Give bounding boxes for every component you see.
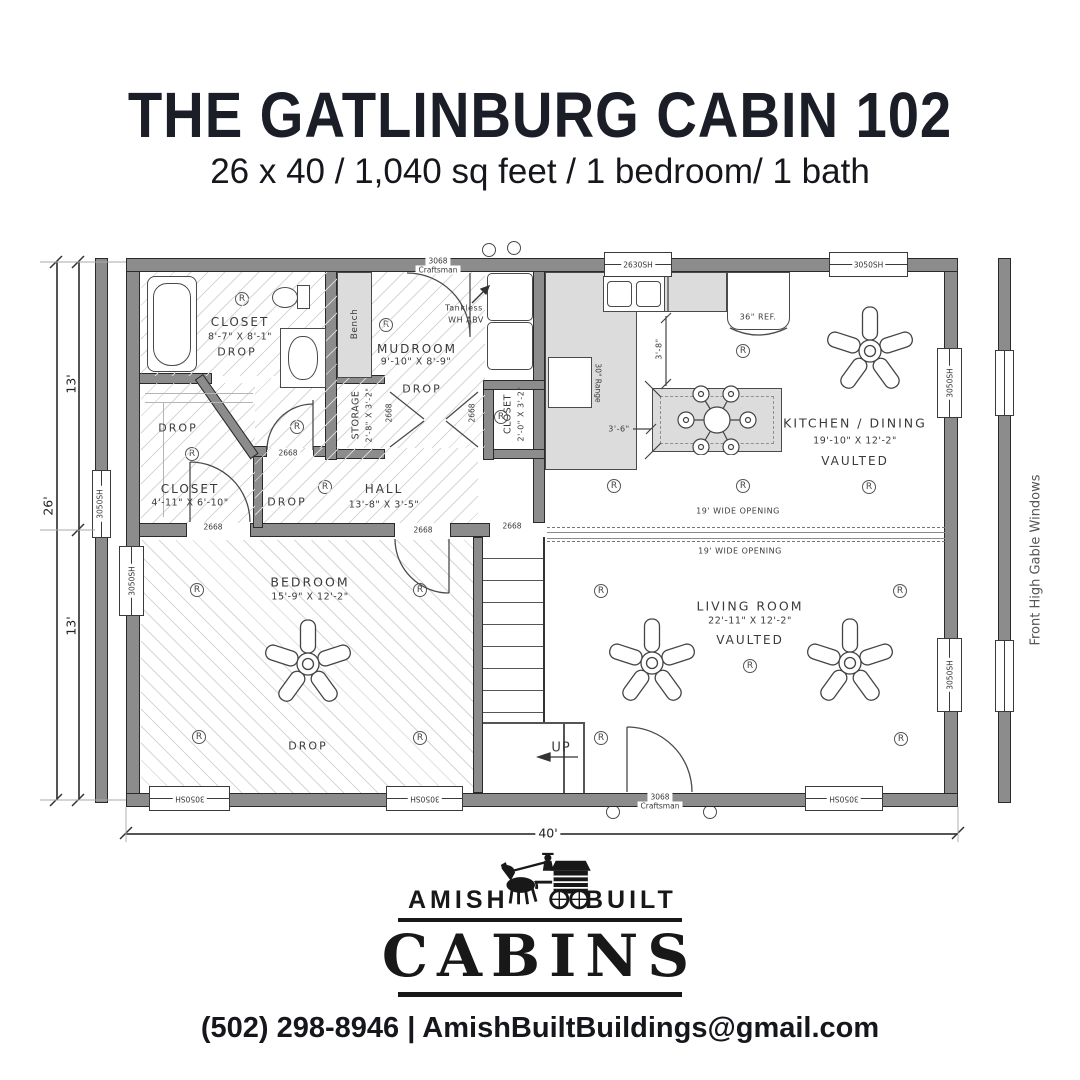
- wall-segment: [998, 258, 1011, 803]
- window-3050SH: 3050SH: [119, 546, 144, 616]
- vanity-sink: [288, 336, 318, 380]
- stair-landing-line: [583, 723, 585, 793]
- window-3050SH: 3050SH: [937, 638, 962, 712]
- half-depth-dim: 13': [64, 616, 79, 635]
- island-light-fixture-icon: [657, 385, 777, 460]
- clearance-dim: 3'-8": [655, 338, 664, 359]
- recessed-light-symbol: R: [413, 583, 427, 597]
- recessed-light-symbol: R: [736, 479, 750, 493]
- stair-landing-line: [563, 723, 565, 793]
- bedroom-note: DROP: [288, 740, 327, 753]
- refrigerator-label: 36" REF.: [740, 313, 777, 322]
- fixture-circle: [606, 805, 620, 819]
- wall-segment: [450, 523, 490, 537]
- window-3050SH: 3050SH: [829, 252, 908, 277]
- wall-segment: [944, 258, 958, 807]
- fixture-circle: [507, 241, 521, 255]
- closet-note: DROP: [158, 422, 197, 435]
- contact-info: (502) 298-8946 | AmishBuiltBuildings@gma…: [201, 1012, 879, 1045]
- clearance-dim: 3'-6": [608, 425, 629, 434]
- recessed-light-symbol: R: [894, 732, 908, 746]
- kitchen-name: KITCHEN / DINING: [783, 416, 927, 431]
- window-3050SH: 3050SH: [149, 786, 230, 811]
- sink-bowl: [636, 281, 661, 307]
- door-label: 2668: [410, 526, 435, 535]
- bath-name: CLOSET: [211, 315, 270, 329]
- toilet-tank: [297, 285, 310, 309]
- dimension-line: [56, 262, 58, 800]
- logo-word-built: BUILT: [585, 886, 677, 915]
- gable-window: [995, 350, 1014, 416]
- dimension-line: [78, 262, 80, 800]
- bath-dims: 8'-7" X 8'-1": [208, 332, 272, 343]
- range-label: 30" Range: [594, 363, 603, 402]
- mudroom-dims: 9'-10" X 8'-9": [381, 357, 452, 368]
- recessed-light-symbol: R: [893, 584, 907, 598]
- kitchen-dims: 19'-10" X 12'-2": [813, 436, 897, 447]
- bench-label: Bench: [350, 309, 360, 340]
- storage-name: STORAGE: [351, 391, 362, 440]
- living-name: LIVING ROOM: [696, 599, 803, 614]
- recessed-light-symbol: R: [190, 583, 204, 597]
- bedroom-dims: 15'-9" X 12'-2": [271, 592, 348, 603]
- logo-word-amish: AMISH: [408, 886, 509, 915]
- overall-depth-dim: 26': [41, 496, 56, 515]
- recessed-light-symbol: R: [594, 584, 608, 598]
- closet-small-name: CLOSET: [503, 394, 514, 434]
- logo-divider: [398, 992, 682, 997]
- wall-segment: [533, 258, 545, 523]
- door-label: 3068: [425, 257, 450, 266]
- flyer-page: THE GATLINBURG CABIN 102 26 x 40 / 1,040…: [0, 0, 1080, 1080]
- hall-dims: 13'-8" X 3'-5": [349, 500, 420, 511]
- recessed-light-symbol: R: [607, 479, 621, 493]
- door-label: Craftsman: [638, 802, 683, 811]
- closet-small-dims: 2'-0" X 3'-2": [517, 387, 526, 442]
- washer: [487, 273, 533, 321]
- door-label: 3068: [647, 793, 672, 802]
- recessed-light-symbol: R: [594, 731, 608, 745]
- window-3050SH: 3050SH: [805, 786, 883, 811]
- storage-dims: 2'-8" X 3'-2": [365, 388, 374, 443]
- gable-windows-note: Front High Gable Windows: [1029, 474, 1044, 645]
- wall-segment: [483, 380, 545, 390]
- horse-and-wagon-icon: [495, 852, 595, 918]
- overall-width-dim: 40': [535, 826, 560, 841]
- sink-bowl: [607, 281, 632, 307]
- recessed-light-symbol: R: [743, 659, 757, 673]
- door-label: Craftsman: [416, 266, 461, 275]
- floor-hatch: [255, 378, 337, 448]
- logo-word-cabins: CABINS: [382, 922, 698, 990]
- ceiling-fan-icon: [606, 617, 698, 714]
- recessed-light-symbol: R: [736, 344, 750, 358]
- closet-shelf: [145, 402, 253, 403]
- wall-segment: [126, 258, 140, 807]
- toilet-bowl: [272, 287, 298, 308]
- half-depth-dim: 13': [64, 374, 79, 393]
- mudroom-note: DROP: [402, 383, 441, 396]
- ceiling-fan-icon: [262, 618, 354, 715]
- fixture-circle: [703, 805, 717, 819]
- wide-opening-header: [547, 541, 945, 542]
- window-label: 3050SH: [96, 486, 105, 522]
- bathtub-basin: [153, 283, 191, 366]
- ceiling-fan-icon: [804, 617, 896, 714]
- bedroom-name: BEDROOM: [270, 575, 349, 590]
- window-3050SH: 3050SH: [937, 348, 962, 418]
- door-label: 2668: [499, 522, 524, 531]
- wide-opening-header: [547, 527, 945, 528]
- wide-opening-label: 19' WIDE OPENING: [696, 507, 780, 516]
- hall-name: HALL: [365, 482, 404, 496]
- stair-landing-line: [483, 722, 585, 724]
- closet-name: CLOSET: [161, 482, 220, 496]
- floor-plan: RRRRRRRRRRRRRRRRRRRR: [0, 0, 1080, 860]
- window-2630SH: 2630SH: [604, 252, 672, 277]
- range: [548, 357, 592, 408]
- recessed-light-symbol: R: [192, 730, 206, 744]
- closet-dims: 4'-11" X 6'-10": [151, 498, 228, 509]
- living-note: VAULTED: [716, 633, 784, 647]
- gable-window: [995, 640, 1014, 712]
- window-3050SH: 3050SH: [386, 786, 463, 811]
- ceiling-fan-icon: [824, 305, 916, 402]
- door-label: 2668: [200, 523, 225, 532]
- recessed-light-symbol: R: [862, 480, 876, 494]
- opening-beam: [547, 532, 945, 539]
- hall-note: DROP: [267, 496, 306, 509]
- fixture-circle: [482, 243, 496, 257]
- door-label: 2668: [385, 403, 394, 422]
- door-label: 2668: [468, 403, 477, 422]
- wall-segment: [250, 523, 395, 537]
- wide-opening-label: 19' WIDE OPENING: [698, 547, 782, 556]
- wall-segment: [473, 537, 483, 793]
- closet-shelf: [145, 393, 253, 394]
- recessed-light-symbol: R: [413, 731, 427, 745]
- kitchen-note: VAULTED: [821, 454, 889, 468]
- tankless-label: Tankless: [445, 304, 483, 313]
- stairs-up-label: UP: [551, 741, 570, 756]
- living-dims: 22'-11" X 12'-2": [708, 616, 792, 627]
- dryer: [487, 322, 533, 370]
- staircase: [483, 537, 545, 723]
- door-label: 2668: [275, 449, 300, 458]
- bath-note: DROP: [217, 346, 256, 359]
- tankless-label: WH ABV: [448, 316, 484, 325]
- mudroom-name: MUDROOM: [377, 342, 457, 356]
